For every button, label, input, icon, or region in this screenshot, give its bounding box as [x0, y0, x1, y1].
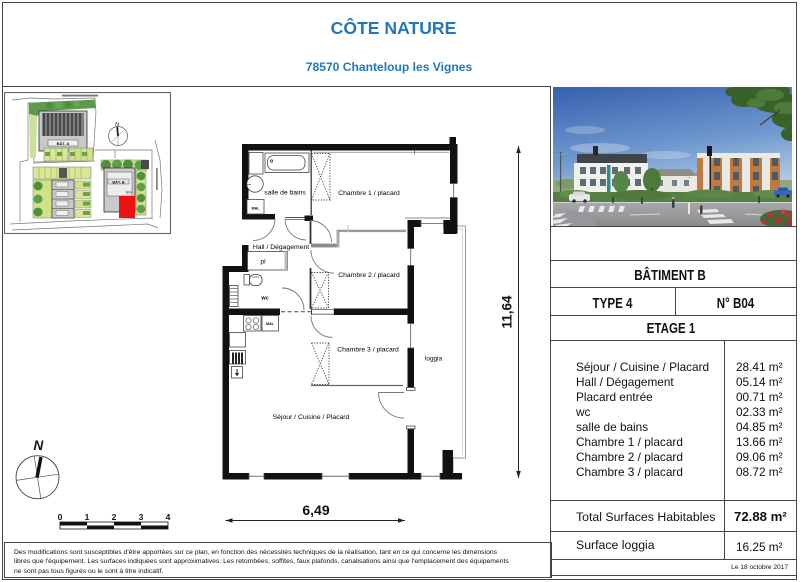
svg-text:B04: B04 — [126, 191, 132, 195]
svg-text:Chambre 1 / placard: Chambre 1 / placard — [338, 190, 400, 197]
svg-text:BÂT. B: BÂT. B — [112, 180, 124, 185]
svg-text:1: 1 — [85, 512, 90, 522]
svg-text:Séjour / Cuisine / Placard: Séjour / Cuisine / Placard — [273, 414, 350, 421]
svg-text:loggia: loggia — [425, 356, 443, 363]
svg-text:pl: pl — [260, 259, 266, 266]
svg-text:Chambre 2 / placard: Chambre 2 / placard — [338, 272, 400, 279]
svg-text:6,49: 6,49 — [302, 502, 329, 518]
svg-text:Hall / Dégagement: Hall / Dégagement — [253, 244, 309, 251]
svg-text:Chambre 3 / placard: Chambre 3 / placard — [337, 347, 399, 354]
svg-text:3: 3 — [139, 512, 144, 522]
svg-text:MAL: MAL — [266, 322, 275, 326]
svg-text:0: 0 — [58, 512, 63, 522]
svg-text:salle de bains: salle de bains — [264, 190, 306, 197]
svg-text:4: 4 — [166, 512, 171, 522]
svg-text:2: 2 — [112, 512, 117, 522]
svg-text:N: N — [34, 438, 44, 453]
svg-text:BÂT. A: BÂT. A — [57, 141, 70, 146]
svg-text:N: N — [115, 122, 119, 128]
svg-text:11,64: 11,64 — [500, 295, 515, 329]
svg-text:wc: wc — [260, 296, 268, 302]
svg-text:MAL: MAL — [252, 207, 261, 211]
